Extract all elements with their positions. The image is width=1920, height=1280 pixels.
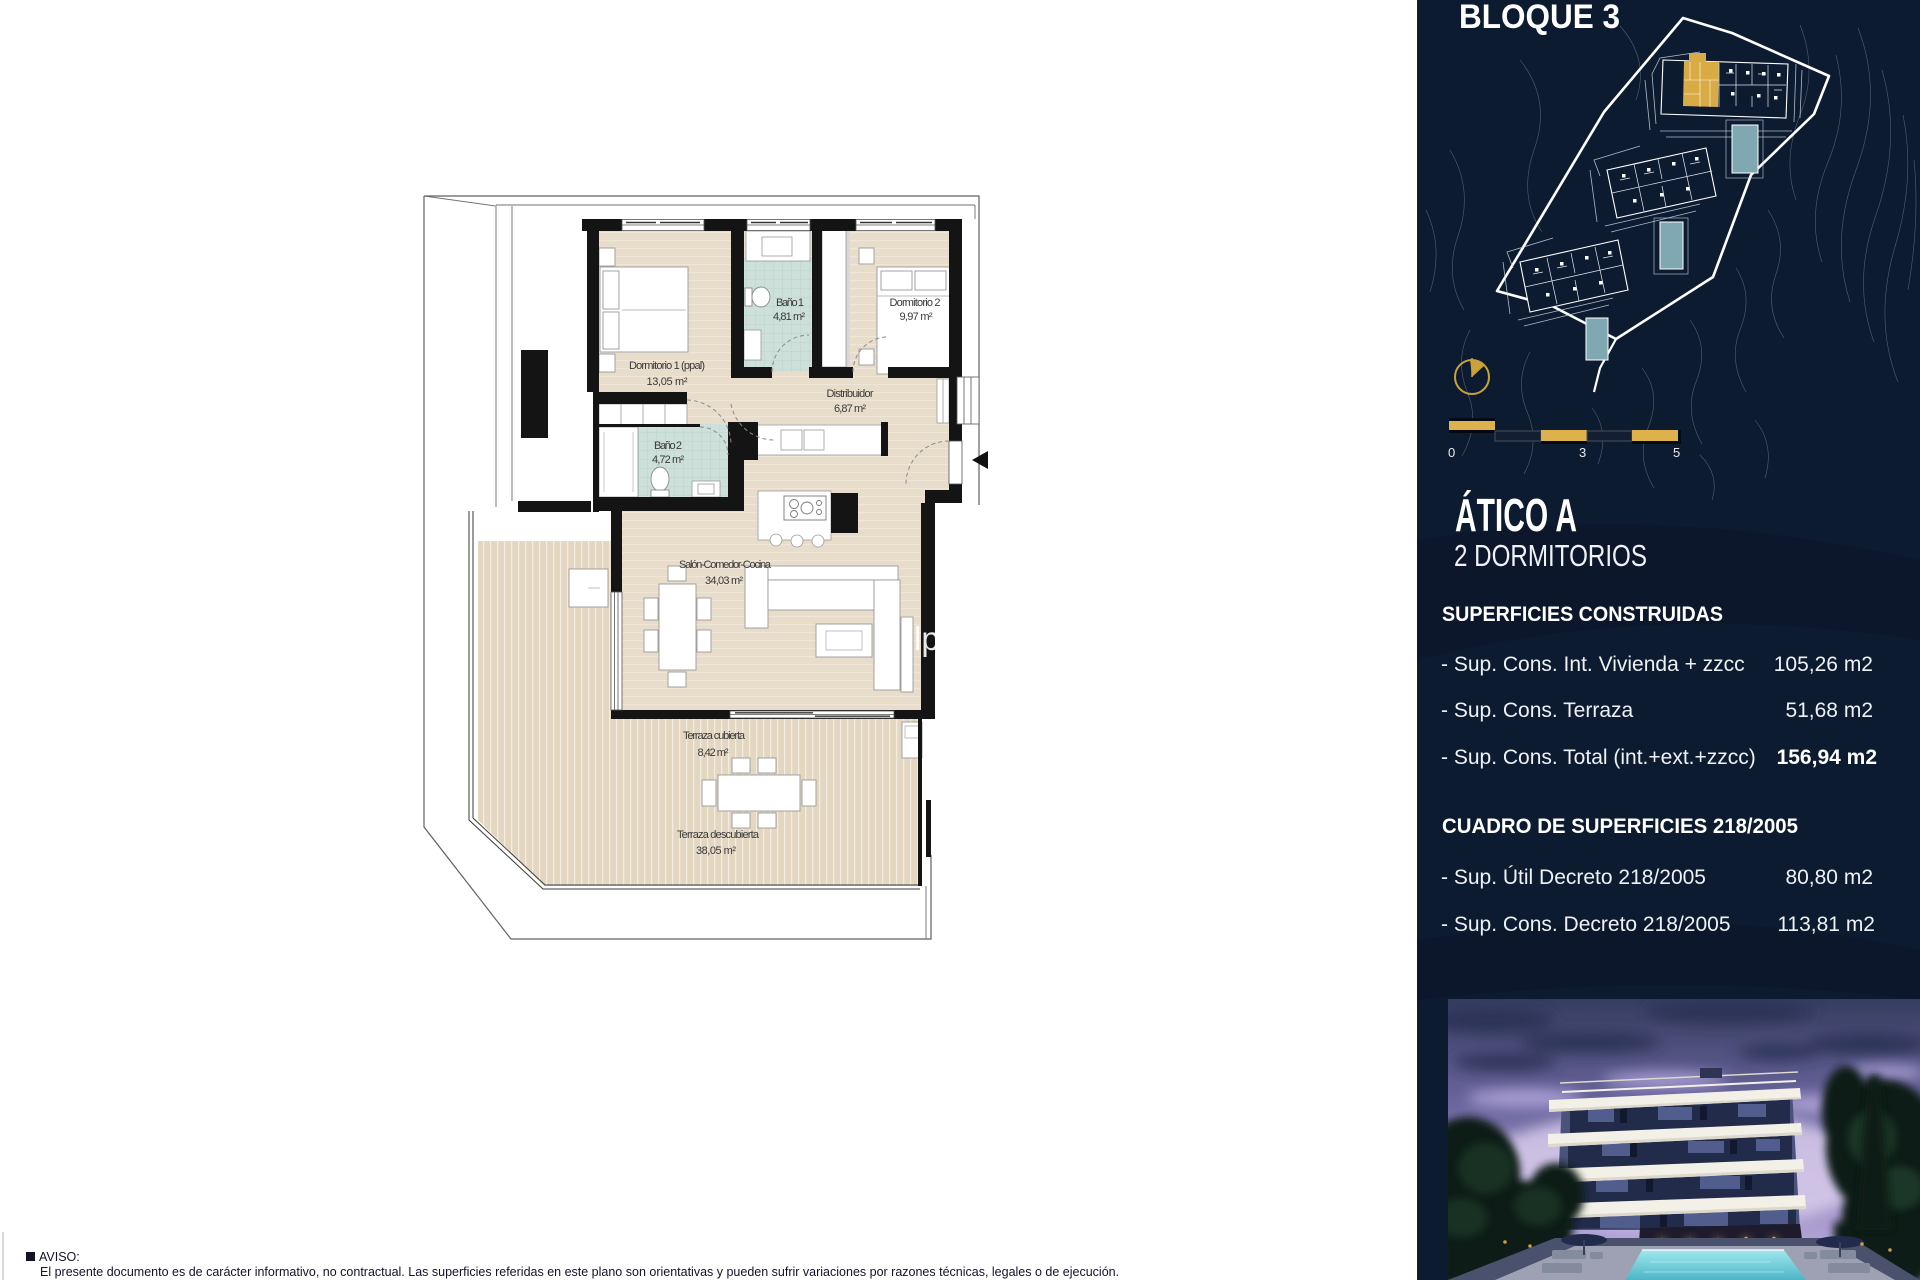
- svg-text:6,87 m²: 6,87 m²: [834, 403, 866, 415]
- svg-text:lpo: lpo: [914, 620, 958, 657]
- svg-text:- Sup. Útil Decreto 218/2005: - Sup. Útil Decreto 218/2005: [1441, 866, 1706, 889]
- svg-text:Baño 1: Baño 1: [776, 297, 804, 309]
- svg-text:- Sup. Cons. Terraza: - Sup. Cons. Terraza: [1441, 699, 1634, 722]
- svg-text:8,42 m²: 8,42 m²: [698, 747, 729, 759]
- svg-text:0: 0: [1448, 445, 1455, 460]
- svg-text:SUPERFICIES CONSTRUIDAS: SUPERFICIES CONSTRUIDAS: [1442, 603, 1723, 626]
- svg-text:2 DORMITORIOS: 2 DORMITORIOS: [1454, 538, 1647, 573]
- svg-text:156,94 m2: 156,94 m2: [1777, 746, 1877, 769]
- svg-text:51,68 m2: 51,68 m2: [1785, 699, 1873, 722]
- svg-text:El presente documento es de ca: El presente documento es de carácter inf…: [40, 1265, 1119, 1279]
- svg-text:Baño 2: Baño 2: [654, 440, 682, 452]
- svg-text:ÁTICO A: ÁTICO A: [1455, 489, 1577, 541]
- svg-text:105,26 m2: 105,26 m2: [1774, 653, 1873, 676]
- svg-text:Dormitorio 1 (ppal): Dormitorio 1 (ppal): [629, 360, 705, 372]
- svg-text:Dormitorio 2: Dormitorio 2: [890, 297, 941, 309]
- svg-text:Terraza descubierta: Terraza descubierta: [677, 829, 760, 841]
- svg-text:38,05 m²: 38,05 m²: [696, 845, 736, 857]
- svg-text:BLOQUE 3: BLOQUE 3: [1459, 0, 1620, 36]
- svg-text:- Sup. Cons. Total (int.+ext.+: - Sup. Cons. Total (int.+ext.+zzcc): [1441, 746, 1756, 769]
- svg-text:- Sup. Cons. Decreto 218/2005: - Sup. Cons. Decreto 218/2005: [1441, 913, 1731, 936]
- svg-text:AVISO:: AVISO:: [39, 1250, 80, 1264]
- svg-text:3: 3: [1579, 445, 1586, 460]
- svg-text:113,81 m2: 113,81 m2: [1777, 913, 1875, 936]
- svg-text:9,97 m²: 9,97 m²: [900, 311, 933, 323]
- svg-text:Terraza cubierta: Terraza cubierta: [683, 730, 746, 742]
- svg-text:CUADRO DE SUPERFICIES 218/2005: CUADRO DE SUPERFICIES 218/2005: [1442, 815, 1798, 838]
- svg-text:80,80 m2: 80,80 m2: [1785, 866, 1873, 889]
- svg-text:Distribuidor: Distribuidor: [827, 388, 874, 400]
- svg-text:- Sup. Cons. Int. Vivienda + z: - Sup. Cons. Int. Vivienda + zzcc: [1441, 653, 1745, 676]
- svg-text:Salón-Comedor-Cocina: Salón-Comedor-Cocina: [679, 559, 772, 571]
- svg-text:4,72 m²: 4,72 m²: [652, 454, 684, 466]
- svg-text:4,81 m²: 4,81 m²: [773, 311, 805, 323]
- svg-text:34,03 m²: 34,03 m²: [705, 575, 743, 587]
- svg-text:13,05 m²: 13,05 m²: [647, 376, 688, 388]
- svg-text:5: 5: [1673, 445, 1680, 460]
